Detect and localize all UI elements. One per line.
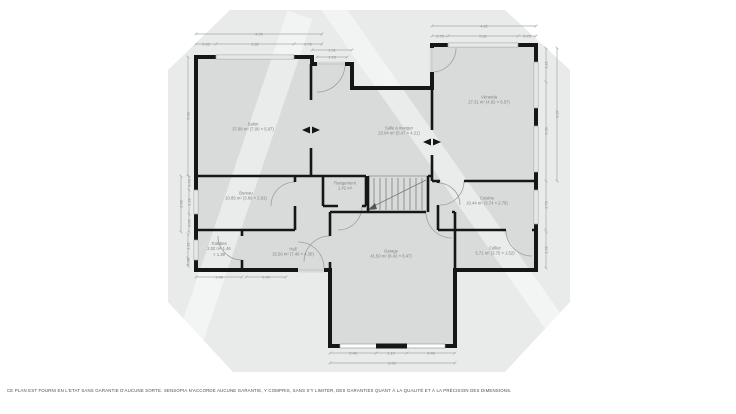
dim-label: 4.82 — [480, 24, 488, 29]
dim-label: 2.79 — [544, 201, 549, 209]
dim-label: 1.21 — [544, 61, 549, 69]
dim-label: 6.42 — [388, 361, 396, 366]
garage-door — [340, 344, 445, 349]
room-size: (3.89 × 2.91) — [243, 196, 267, 201]
room-label-cellier: Cellier 5.71 m² (3.75 × 1.52) — [475, 246, 514, 257]
room-size: (3.74 × 2.79) — [484, 201, 508, 206]
floor-plan-page: Salon 37.88 m² (7.00 × 5.87) Salle à man… — [0, 0, 736, 414]
dim-label: 2.40 — [262, 275, 270, 280]
dim-label: 5.36 — [544, 127, 549, 135]
room-area: 5.71 m² — [475, 251, 489, 256]
dim-label: 2.82 — [251, 42, 259, 47]
room-area: 1.42 m² — [338, 186, 352, 191]
room-size: (6.42 × 6.47) — [388, 254, 412, 259]
room-label-salle-a-manger: Salle à manger 23.04 m² (5.47 × 4.21) — [378, 126, 420, 137]
dim-label: 0.75 — [436, 34, 444, 39]
dim-label: 1.52 — [544, 246, 549, 254]
dim-label: 5.88 — [186, 112, 191, 120]
room-label-salon: Salon 37.88 m² (7.00 × 5.87) — [232, 122, 274, 133]
dim-label: 2.81 — [479, 34, 487, 39]
dim-label: 1.91 — [328, 48, 336, 53]
dim-label: 1.46 — [215, 275, 223, 280]
dim-label: 1.21 — [186, 242, 191, 250]
room-label-veranda: Véranda 27.31 m² (4.82 × 6.57) — [468, 95, 510, 106]
dim-label: 1.22 — [187, 198, 192, 206]
dim-label: 2.96 — [179, 200, 184, 208]
room-label-bureau: Bureau 10.85 m² (3.89 × 2.91) — [225, 191, 267, 202]
dim-label: 1.03 — [328, 55, 336, 60]
room-label-hall: Hall 15.50 m² (7.48 × 4.30) — [272, 247, 314, 258]
room-size: (5.47 × 4.21) — [396, 131, 420, 136]
dim-label: 6.57 — [555, 110, 560, 118]
room-area: 37.88 m² — [232, 127, 249, 132]
floor-plan-drawing — [0, 0, 736, 414]
dim-label: 0.76 — [304, 42, 312, 47]
room-size: (3.75 × 1.52) — [491, 251, 515, 256]
room-area: 10.85 m² — [225, 196, 242, 201]
dim-label: 4.95 — [255, 32, 263, 37]
room-area: 15.50 m² — [272, 252, 289, 257]
room-label-toilettes: Toilettes 2.02 m² 1.46 × 1.39 — [206, 241, 232, 257]
room-label-rangement: Rangement 1.42 m² — [334, 181, 356, 192]
room-size: (4.82 × 6.57) — [486, 100, 510, 105]
dim-label: 0.95 — [187, 219, 192, 227]
dim-label: 0.75 — [523, 34, 531, 39]
room-size: (7.00 × 5.87) — [250, 127, 274, 132]
room-area: 23.04 m² — [378, 131, 395, 136]
disclaimer-text: CE PLAN EST FOURNI EN L'ETAT SANS GARANT… — [7, 388, 512, 393]
dim-label: 0.36 — [186, 258, 191, 266]
room-area: 2.02 m² — [207, 246, 221, 251]
room-area: 10.44 m² — [466, 201, 483, 206]
dim-label: 0.73 — [187, 179, 192, 187]
dim-label: 2.46 — [427, 351, 435, 356]
dim-label: 0.95 — [202, 42, 210, 47]
room-size: (7.48 × 4.30) — [290, 252, 314, 257]
room-label-garage: Garage 41.50 m² (6.42 × 6.47) — [370, 249, 412, 260]
room-label-cuisine: Cuisine 10.44 m² (3.74 × 2.79) — [466, 196, 508, 207]
room-area: 41.50 m² — [370, 254, 387, 259]
room-area: 27.31 m² — [468, 100, 485, 105]
dim-label: 2.46 — [349, 351, 357, 356]
dim-label: 1.19 — [387, 351, 395, 356]
